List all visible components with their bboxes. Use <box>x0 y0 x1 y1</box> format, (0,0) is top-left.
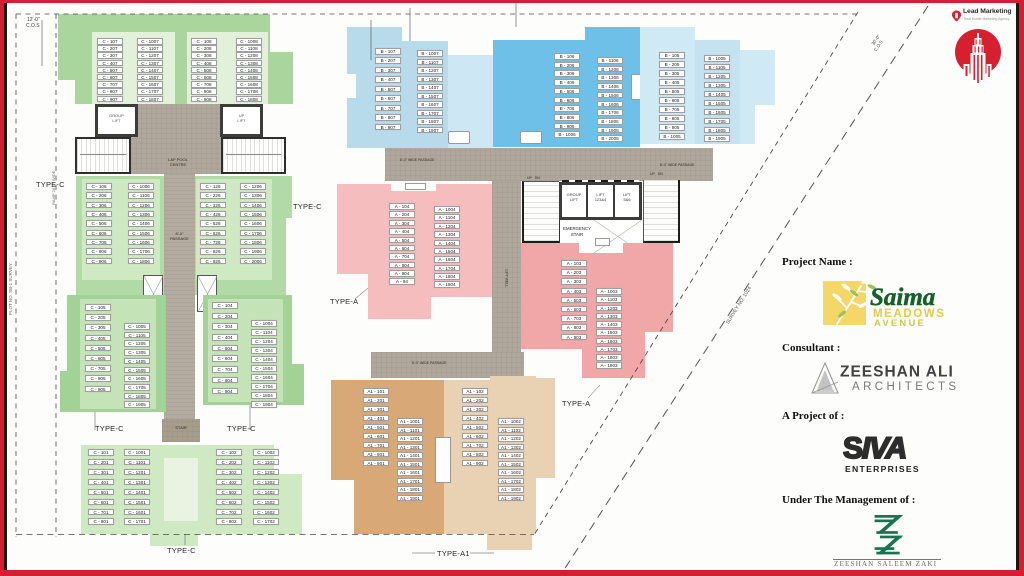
svg-text:ZEESHAN ALI: ZEESHAN ALI <box>840 364 954 381</box>
svg-text:ARCHITECTS: ARCHITECTS <box>852 381 958 393</box>
svg-text:RAMP 26'-0" WIDE: RAMP 26'-0" WIDE <box>51 170 56 205</box>
svg-text:ENTERPRISES: ENTERPRISES <box>845 464 920 474</box>
svg-text:AVENUE: AVENUE <box>874 318 926 328</box>
svg-text:PLOT NO. SB-1 SURVEY: PLOT NO. SB-1 SURVEY <box>8 263 13 315</box>
svg-text:SURVEY NO. 1024: SURVEY NO. 1024 <box>725 285 753 325</box>
svg-text:C.O.S: C.O.S <box>26 23 40 29</box>
svg-text:SIVA: SIVA <box>843 433 906 465</box>
svg-text:Saima: Saima <box>870 284 935 311</box>
